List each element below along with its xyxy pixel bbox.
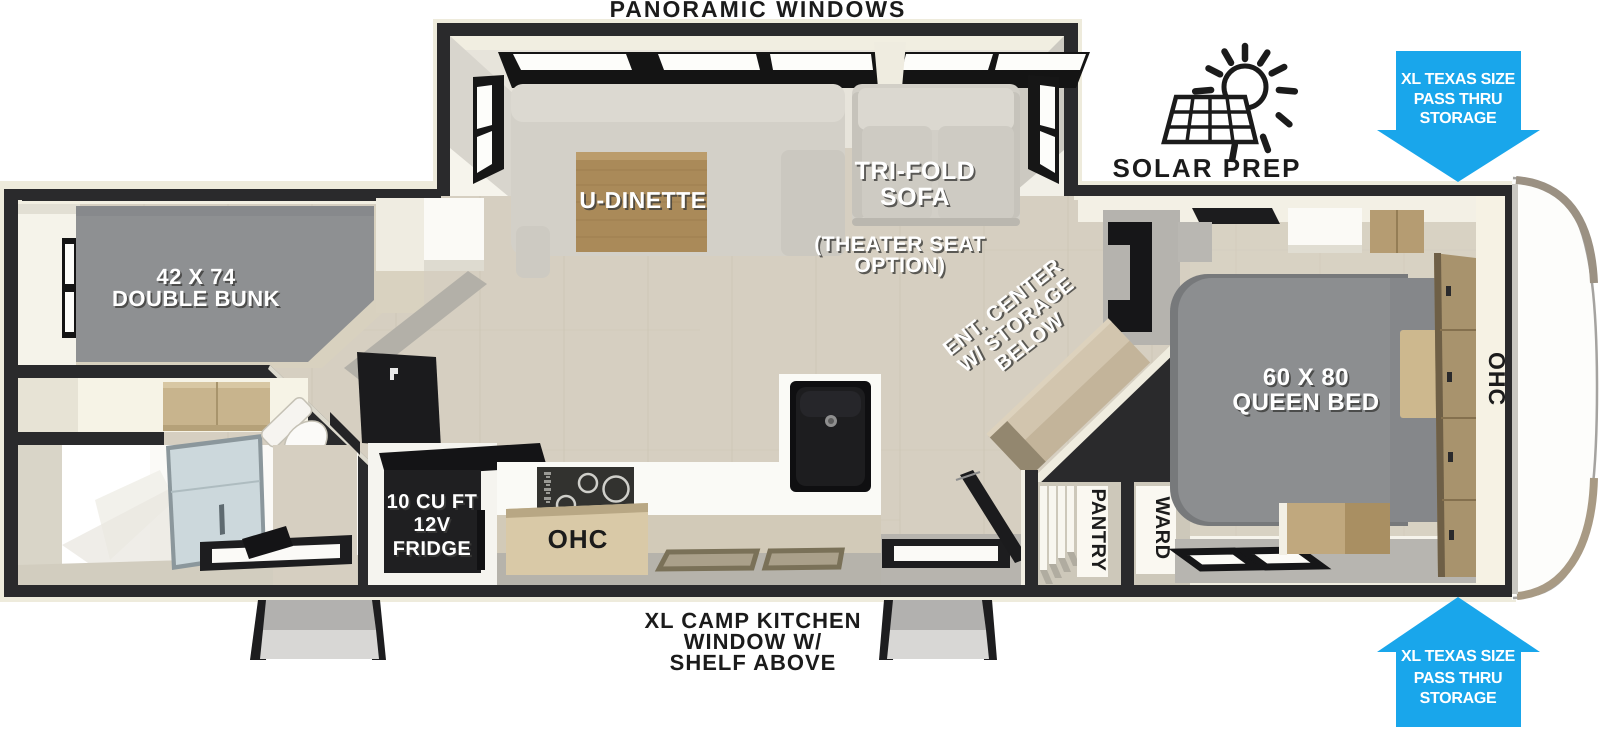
svg-text:10 CU FT: 10 CU FT bbox=[387, 491, 478, 513]
svg-text:OHC: OHC bbox=[548, 524, 609, 554]
svg-text:PASS THRU: PASS THRU bbox=[1414, 670, 1503, 687]
svg-text:PANORAMIC WINDOWS: PANORAMIC WINDOWS bbox=[610, 0, 907, 22]
svg-text:XL TEXAS SIZE: XL TEXAS SIZE bbox=[1401, 71, 1516, 88]
svg-text:DOUBLE BUNK: DOUBLE BUNK bbox=[112, 286, 280, 311]
svg-text:OHC: OHC bbox=[1484, 352, 1510, 406]
svg-text:(THEATER SEAT: (THEATER SEAT bbox=[814, 233, 985, 256]
svg-text:12V: 12V bbox=[413, 514, 450, 536]
svg-text:WARD: WARD bbox=[1151, 496, 1173, 559]
svg-text:FRIDGE: FRIDGE bbox=[393, 538, 472, 560]
svg-text:STORAGE: STORAGE bbox=[1420, 690, 1497, 707]
svg-text:SOFA: SOFA bbox=[880, 183, 950, 211]
svg-text:PASS THRU: PASS THRU bbox=[1414, 91, 1503, 108]
svg-text:XL TEXAS SIZE: XL TEXAS SIZE bbox=[1401, 648, 1516, 665]
svg-text:SHELF ABOVE: SHELF ABOVE bbox=[670, 650, 837, 675]
svg-text:U-DINETTE: U-DINETTE bbox=[579, 187, 706, 213]
svg-text:SOLAR PREP: SOLAR PREP bbox=[1112, 153, 1301, 183]
svg-text:60 X 80: 60 X 80 bbox=[1263, 364, 1349, 391]
svg-text:PANTRY: PANTRY bbox=[1087, 489, 1109, 572]
svg-text:OPTION): OPTION) bbox=[855, 254, 946, 277]
svg-text:QUEEN BED: QUEEN BED bbox=[1232, 389, 1379, 416]
svg-text:STORAGE: STORAGE bbox=[1420, 110, 1497, 127]
svg-text:TRI-FOLD: TRI-FOLD bbox=[855, 157, 976, 185]
